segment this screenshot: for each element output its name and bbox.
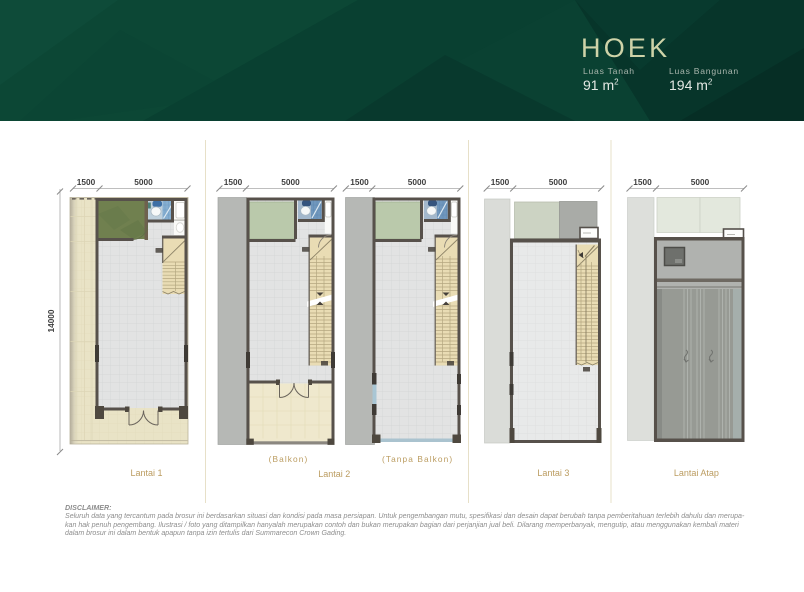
svg-text:5000: 5000 bbox=[134, 177, 153, 187]
svg-text:1500: 1500 bbox=[224, 177, 243, 187]
svg-text:(Tanpa Balkon): (Tanpa Balkon) bbox=[382, 454, 453, 464]
svg-text:5000: 5000 bbox=[691, 177, 710, 187]
svg-text:Lantai 2: Lantai 2 bbox=[318, 469, 350, 479]
svg-text:1500: 1500 bbox=[633, 177, 652, 187]
svg-text:14000: 14000 bbox=[46, 309, 56, 332]
svg-text:1500: 1500 bbox=[491, 177, 510, 187]
svg-text:5000: 5000 bbox=[408, 177, 427, 187]
svg-text:(Balkon): (Balkon) bbox=[269, 454, 309, 464]
svg-text:1500: 1500 bbox=[77, 177, 96, 187]
svg-text:Lantai 3: Lantai 3 bbox=[537, 468, 569, 478]
svg-text:Lantai Atap: Lantai Atap bbox=[674, 468, 719, 478]
svg-text:1500: 1500 bbox=[350, 177, 369, 187]
svg-text:5000: 5000 bbox=[549, 177, 568, 187]
svg-text:Lantai 1: Lantai 1 bbox=[130, 468, 162, 478]
svg-text:5000: 5000 bbox=[281, 177, 300, 187]
